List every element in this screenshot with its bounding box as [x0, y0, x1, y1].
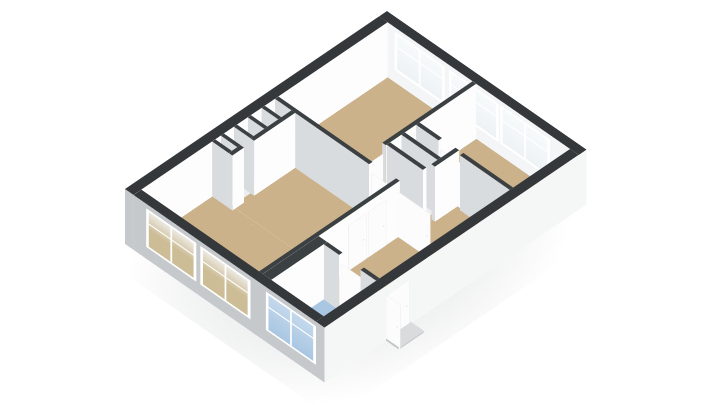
door-handle: [383, 225, 384, 227]
wall-bathroom-right-a-face-west: [324, 244, 339, 310]
door-handle: [363, 239, 364, 241]
door-handle: [406, 305, 407, 307]
window-mullion: [419, 50, 421, 86]
wall-exterior-top-right-face-south: [579, 150, 587, 210]
wall-exterior-top-left-face-west: [125, 189, 134, 250]
window-mullion: [170, 227, 172, 263]
window-mullion: [224, 265, 226, 301]
window-mullion: [524, 124, 526, 160]
door-handle: [396, 326, 397, 328]
window-mullion: [290, 310, 292, 346]
door-handle: [426, 235, 427, 237]
floor-plan-scene: [0, 0, 720, 405]
wall-niche-front-a-face-south: [232, 148, 244, 211]
wall-exterior-bottom-right-face-west: [316, 322, 325, 383]
